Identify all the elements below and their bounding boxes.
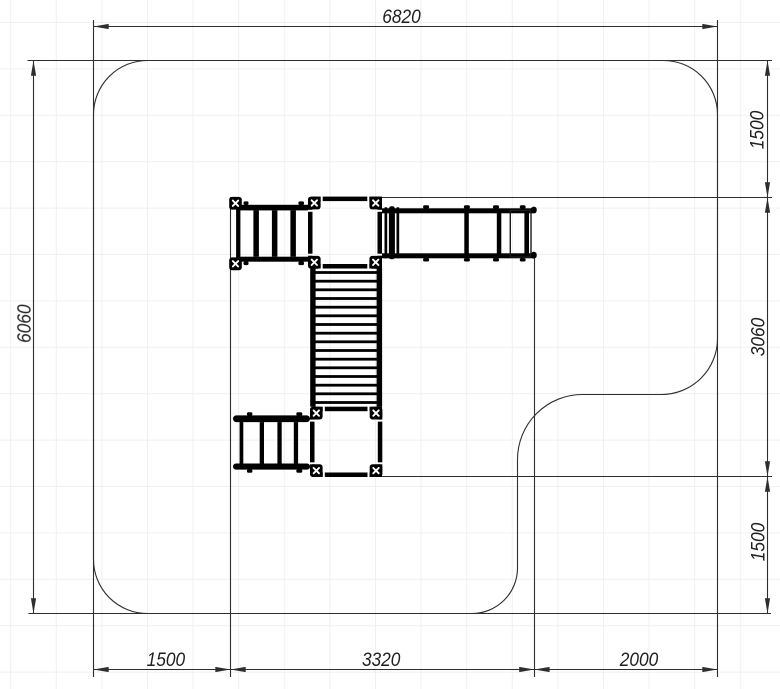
- svg-text:3320: 3320: [362, 650, 401, 671]
- svg-text:2000: 2000: [619, 650, 659, 671]
- svg-text:6820: 6820: [382, 7, 421, 28]
- svg-text:1500: 1500: [747, 110, 768, 149]
- svg-text:1500: 1500: [749, 522, 770, 561]
- svg-text:6060: 6060: [15, 304, 36, 343]
- svg-text:3060: 3060: [749, 317, 770, 356]
- svg-text:1500: 1500: [147, 650, 186, 671]
